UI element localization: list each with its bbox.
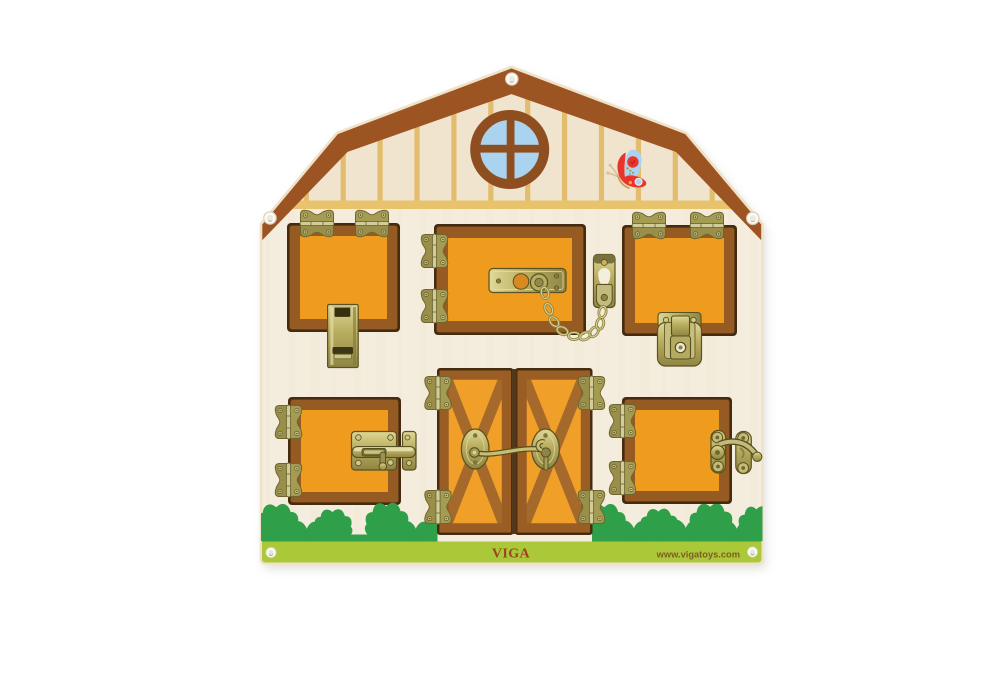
svg-text:VIGA: VIGA [492,547,531,562]
svg-text:www.vigatoys.com: www.vigatoys.com [656,550,740,560]
